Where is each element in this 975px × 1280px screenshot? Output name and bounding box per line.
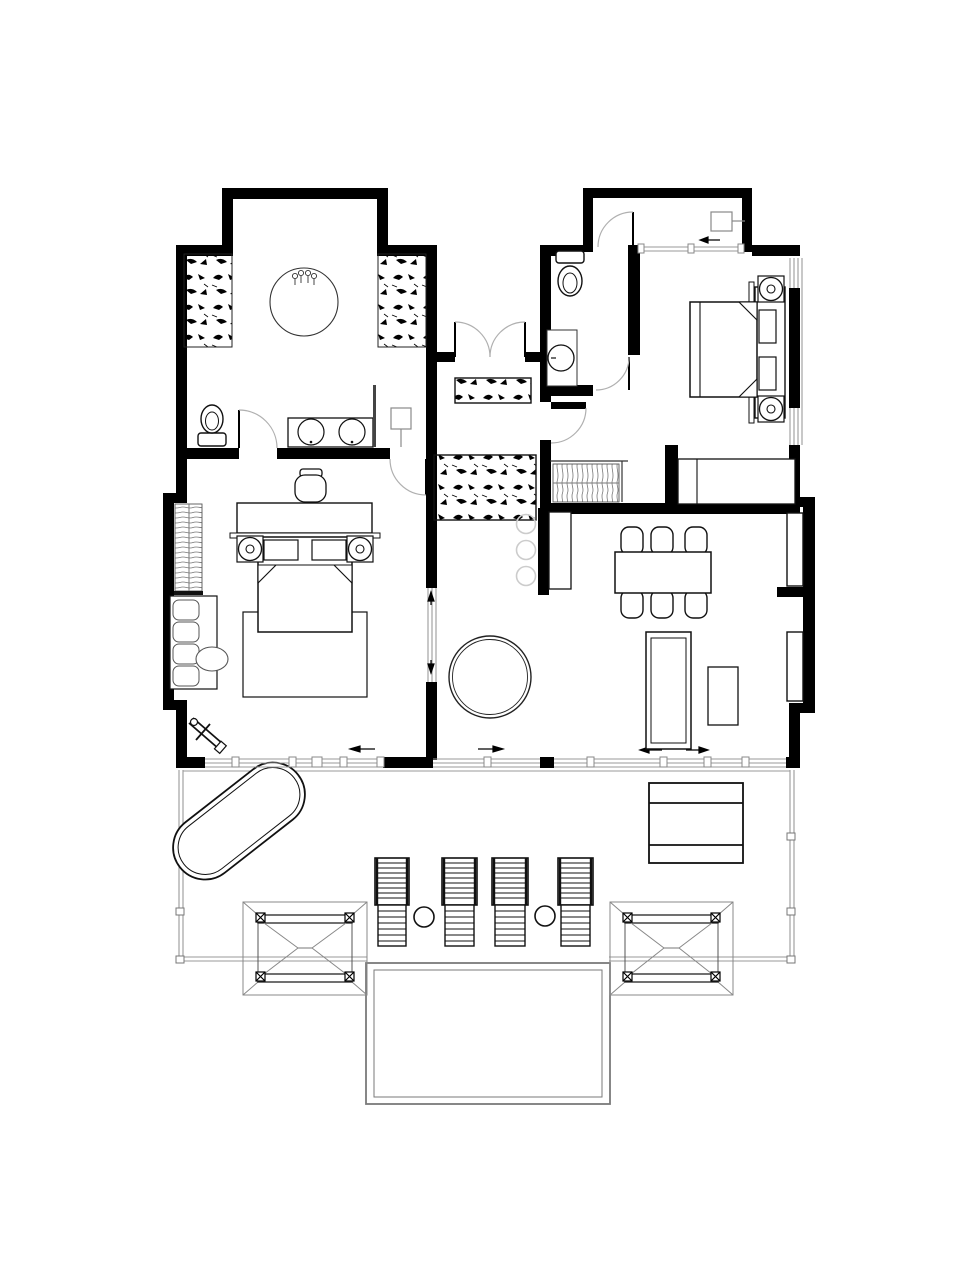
sun-lounger <box>442 858 477 946</box>
planter-small <box>455 378 531 403</box>
round-nightstand <box>758 396 784 422</box>
toilet-wc <box>556 251 584 296</box>
sun-lounger <box>558 858 593 946</box>
daybed-bench <box>646 632 691 749</box>
round-nightstand <box>758 276 784 302</box>
planting-bed-right <box>378 254 426 347</box>
wardrobe-hanging <box>174 504 203 595</box>
pillow <box>759 310 776 343</box>
round-side-table-deck <box>414 907 434 927</box>
toilet-master <box>198 405 226 446</box>
closet-hanging <box>550 461 628 502</box>
sofa <box>170 596 217 689</box>
pillow <box>759 357 776 390</box>
floor-plan <box>0 0 975 1280</box>
wall-niche-upper <box>787 513 803 586</box>
low-counter <box>678 459 795 504</box>
pillow <box>264 540 298 560</box>
sun-lounger <box>492 858 528 946</box>
planting-bed-left <box>184 254 232 347</box>
deck-post <box>787 908 795 915</box>
headboard <box>237 503 372 533</box>
sun-lounger <box>375 858 409 946</box>
washbasin-counter <box>547 330 577 386</box>
deck-post <box>176 956 184 963</box>
round-soaking-tub <box>270 268 338 336</box>
wall-niche-lower <box>787 632 803 701</box>
outdoor-dining-table-benches <box>649 783 743 863</box>
deck-post <box>176 908 184 915</box>
dining-set <box>615 527 711 618</box>
round-coffee-table <box>449 636 531 718</box>
double-sink-vanity <box>288 418 373 447</box>
side-table <box>196 647 228 671</box>
accent-chair <box>295 469 326 502</box>
planter-large <box>434 455 536 520</box>
deck-post <box>787 956 795 963</box>
mirror-partition <box>373 385 376 447</box>
side-table-living <box>708 667 738 725</box>
round-side-table-deck <box>535 906 555 926</box>
dining-table <box>615 552 711 593</box>
console-table <box>549 512 571 589</box>
deck-post <box>787 833 795 840</box>
round-nightstand <box>237 536 263 562</box>
round-nightstand <box>347 536 373 562</box>
pillow <box>312 540 346 560</box>
